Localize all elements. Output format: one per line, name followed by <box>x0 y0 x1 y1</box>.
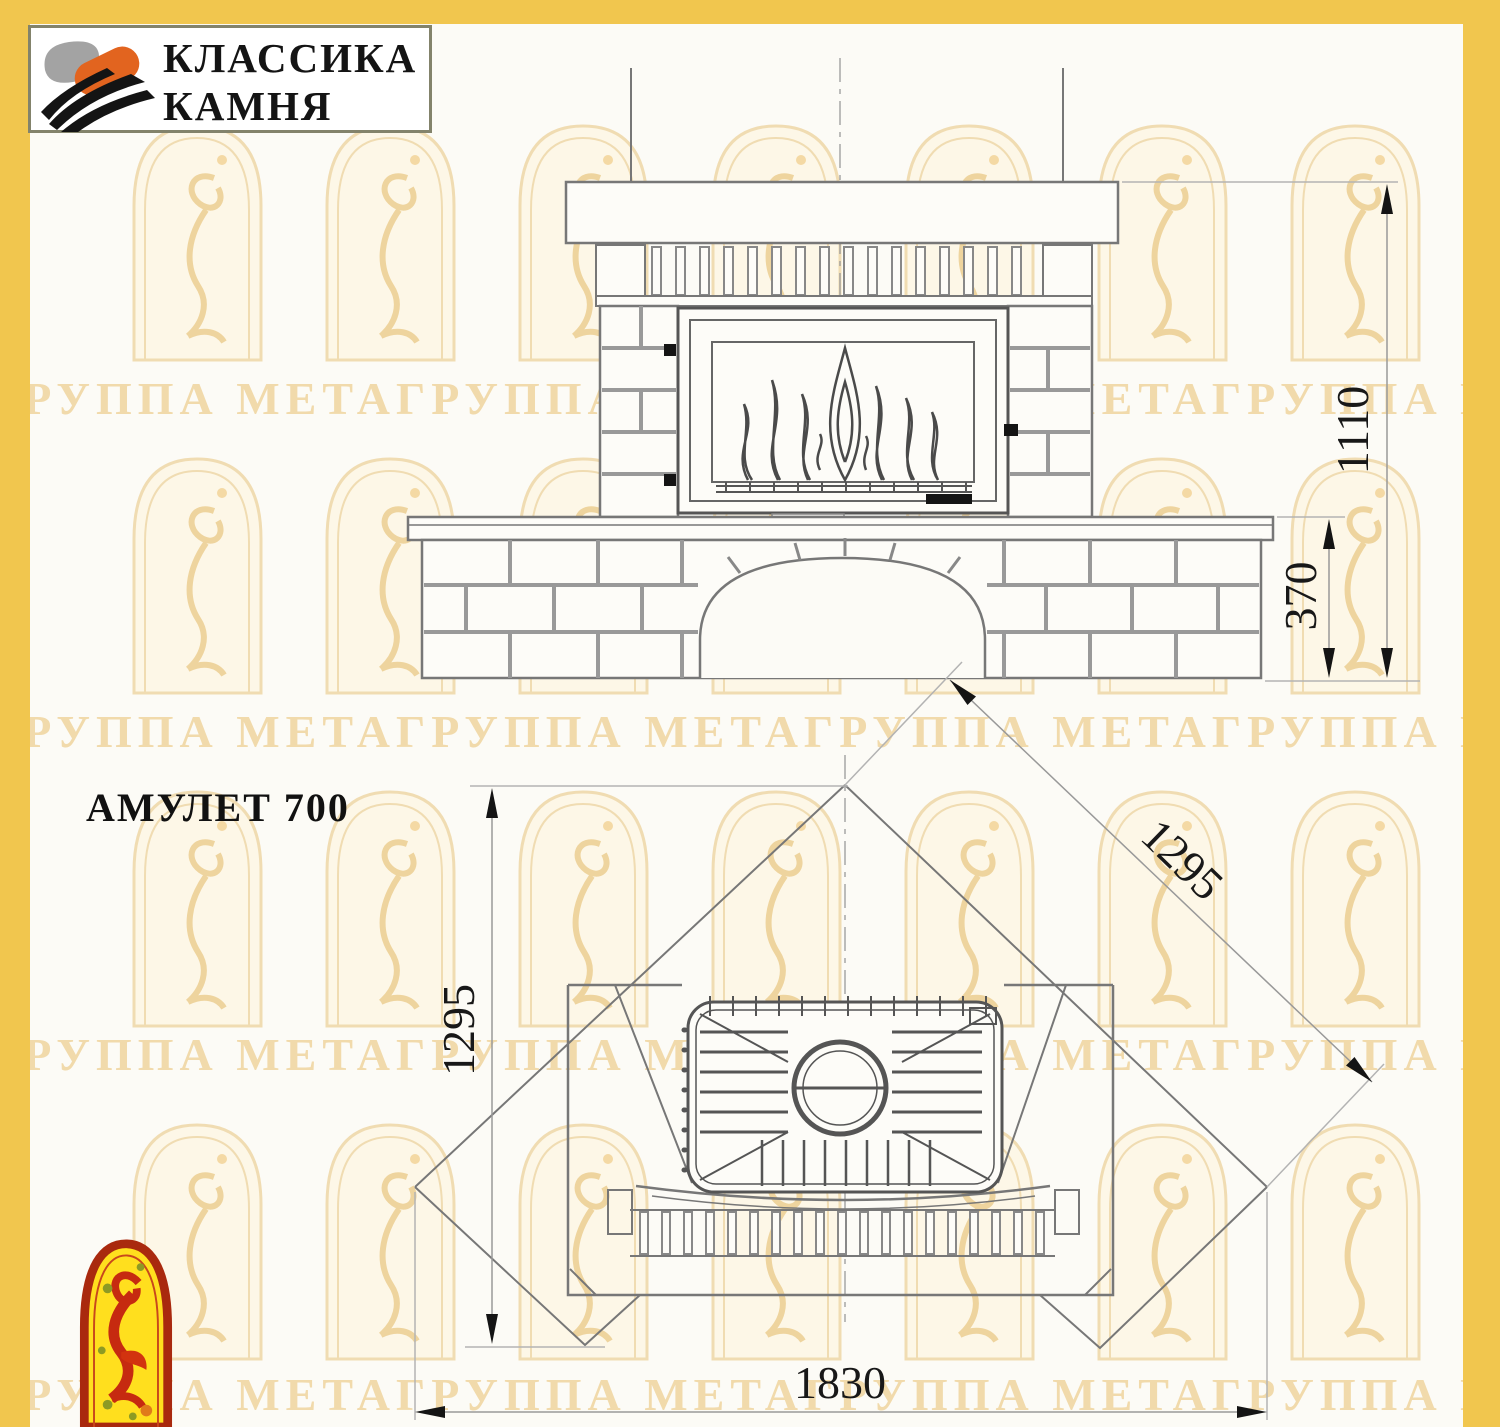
dim-front-width-label: 1830 <box>794 1357 886 1408</box>
front-elevation-view <box>408 58 1273 678</box>
logo-line-1: КЛАССИКА <box>163 34 417 82</box>
company-logo: КЛАССИКА КАМНЯ <box>28 25 432 133</box>
bench-slab <box>408 517 1273 540</box>
stone-logo-icon <box>37 32 159 132</box>
logo-line-2: КАМНЯ <box>163 82 417 130</box>
firebird-emblem-icon <box>78 1238 174 1427</box>
dim-side-left-label: 1295 <box>433 984 484 1076</box>
dim-total-height-label: 1110 <box>1327 386 1378 475</box>
fireplace-technical-drawing: 1110 370 1295 1295 1830 <box>0 0 1500 1427</box>
mantel-shelf <box>566 182 1118 243</box>
dim-bench-height-label: 370 <box>1275 562 1326 631</box>
drawing-sheet: ГРУППА МЕТАГРУППА МЕТАГРУППА МЕТАГРУППА … <box>0 0 1500 1427</box>
plan-hearth-front <box>608 1186 1079 1256</box>
bench-base <box>422 538 1261 678</box>
firebox-insert <box>664 308 1018 513</box>
dentil-row <box>596 245 1092 306</box>
chimney-lines <box>631 68 1063 182</box>
wood-niche-arch <box>700 558 985 678</box>
plan-firebox-unit <box>684 996 1002 1192</box>
model-title: АМУЛЕТ 700 <box>86 784 350 831</box>
dim-side-right-label: 1295 <box>1132 809 1234 910</box>
